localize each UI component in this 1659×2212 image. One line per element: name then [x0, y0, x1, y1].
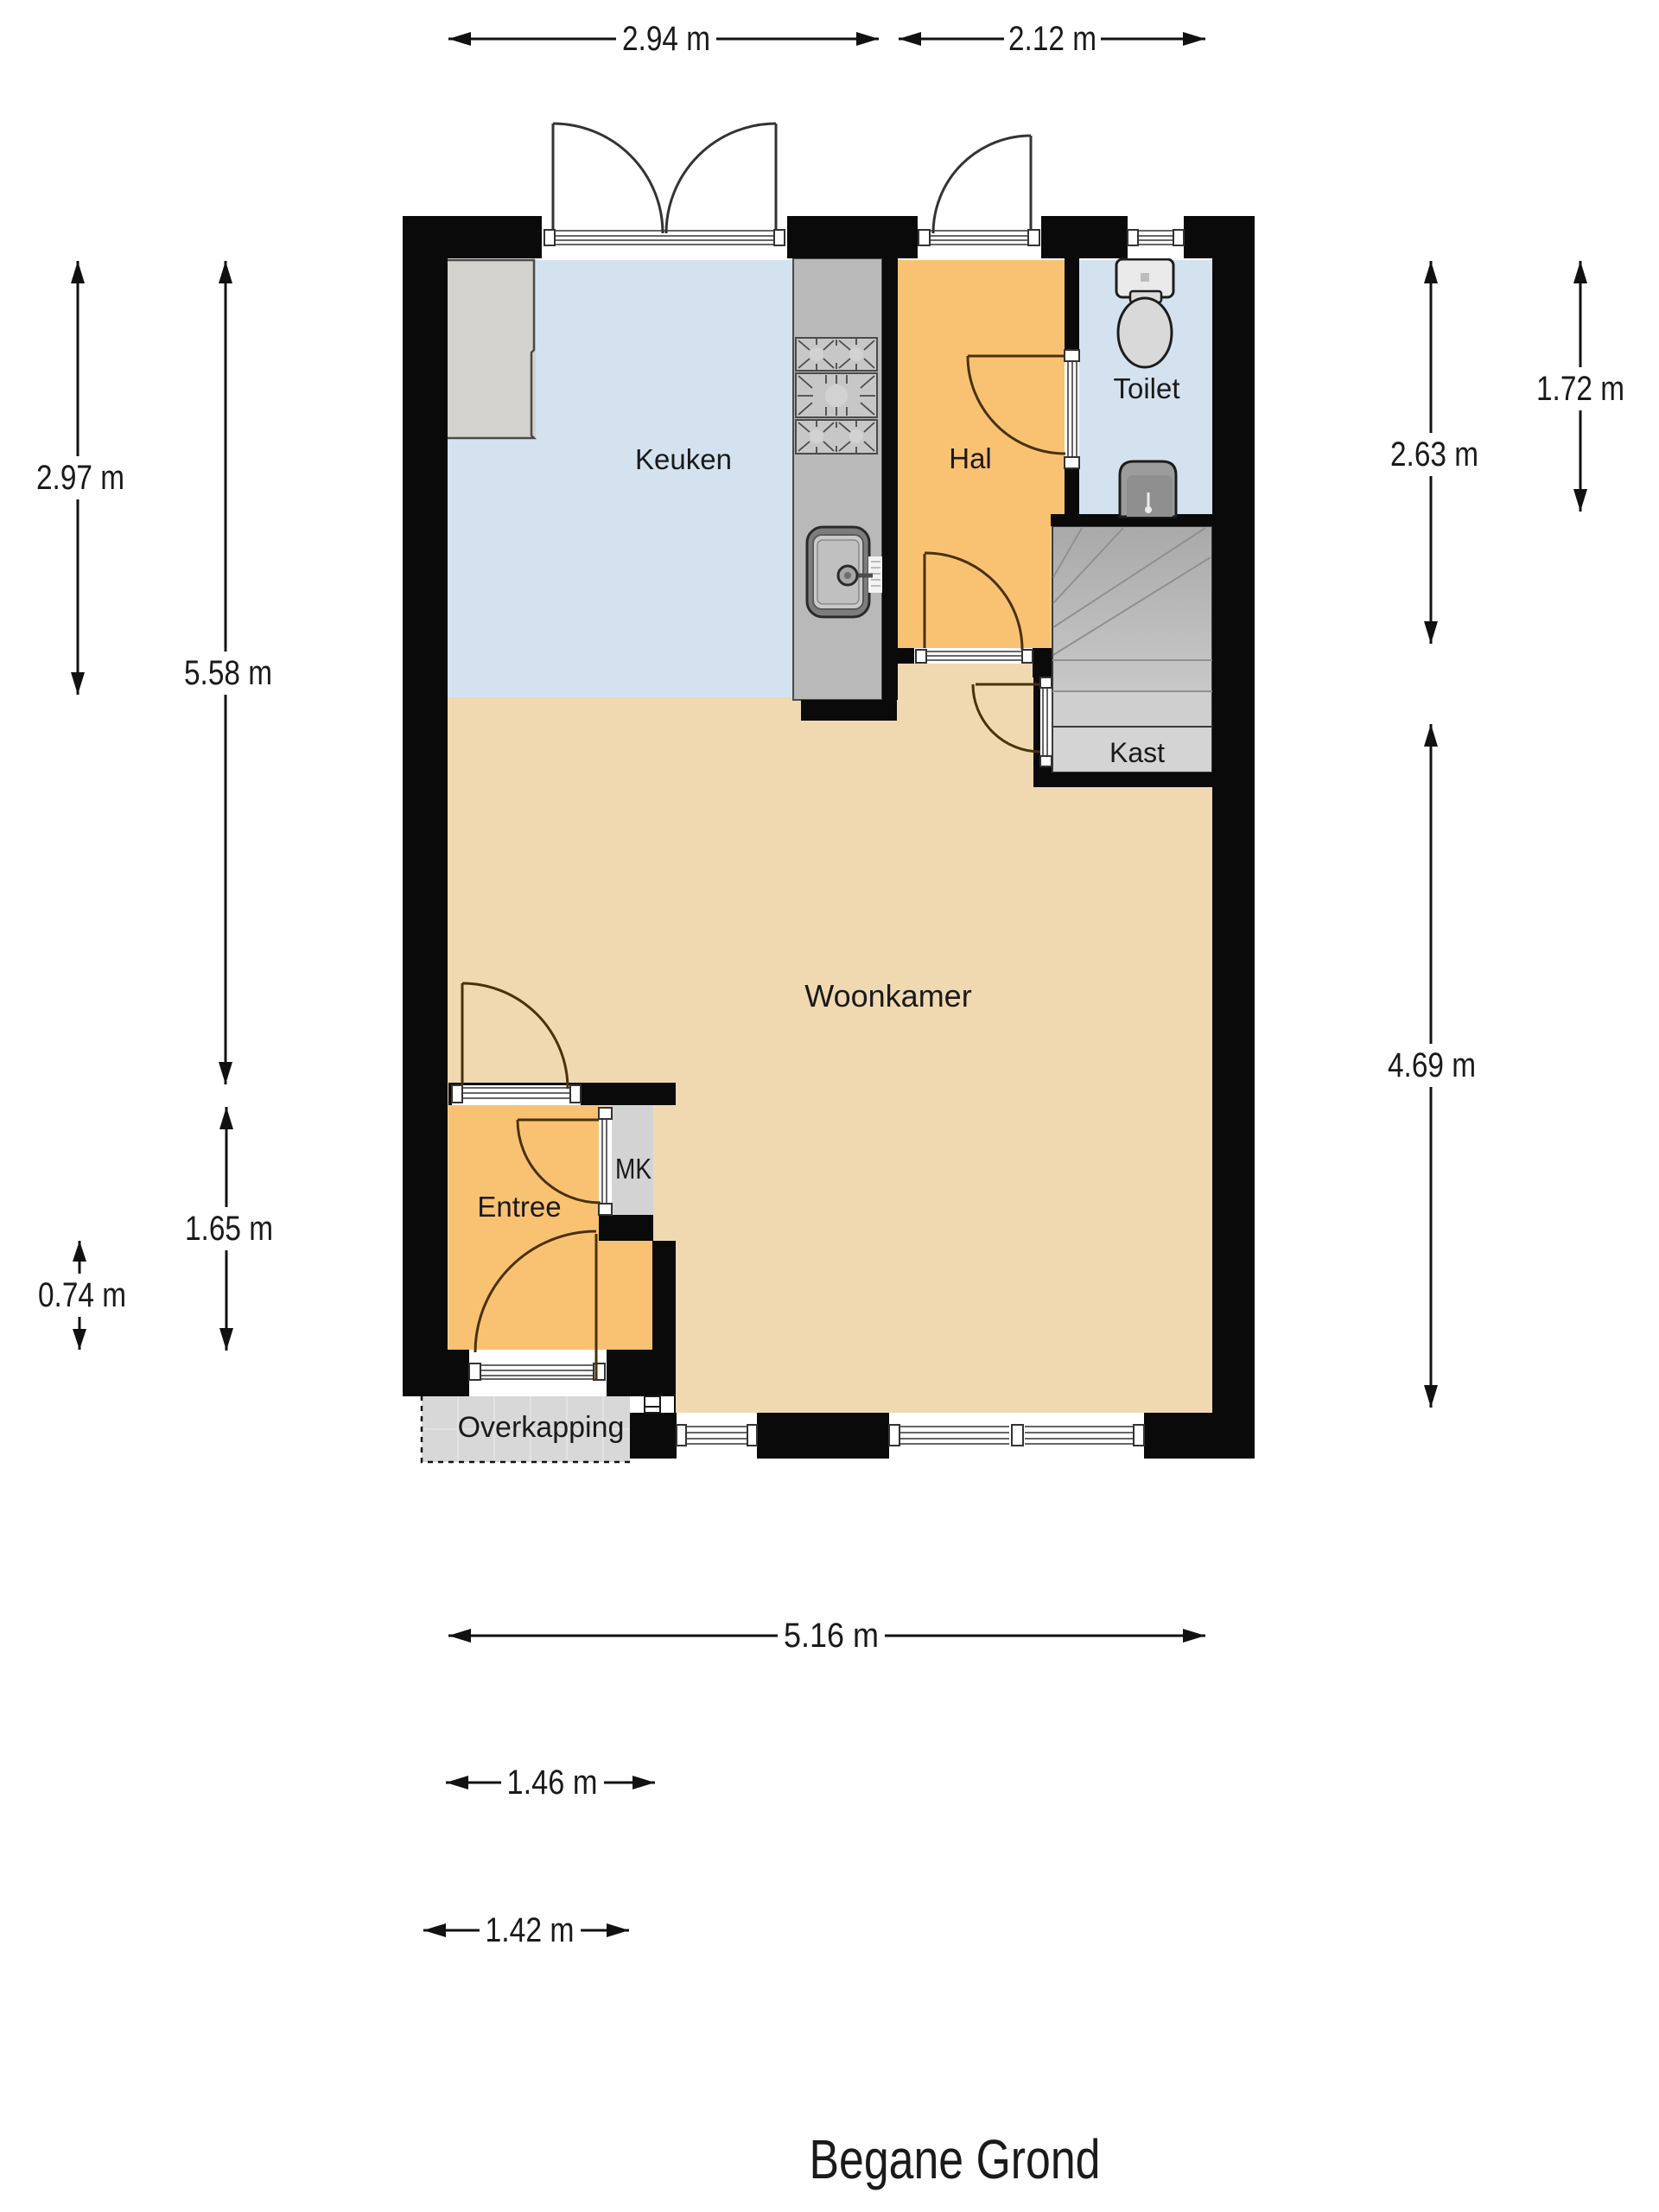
svg-text:2.12 m: 2.12 m	[1008, 20, 1096, 58]
svg-text:5.58 m: 5.58 m	[184, 654, 272, 692]
svg-text:1.42 m: 1.42 m	[486, 1911, 575, 1949]
svg-text:2.97 m: 2.97 m	[36, 459, 124, 497]
svg-text:1.72 m: 1.72 m	[1536, 370, 1624, 408]
svg-text:4.69 m: 4.69 m	[1388, 1046, 1476, 1084]
svg-text:Overkapping: Overkapping	[458, 1411, 625, 1444]
svg-text:0.74 m: 0.74 m	[38, 1276, 126, 1314]
svg-text:Toilet: Toilet	[1113, 372, 1179, 404]
svg-text:Kast: Kast	[1109, 737, 1165, 768]
svg-text:Keuken: Keuken	[635, 443, 732, 475]
svg-text:Entree: Entree	[477, 1191, 561, 1223]
svg-text:2.63 m: 2.63 m	[1390, 435, 1478, 474]
svg-text:MK: MK	[615, 1153, 652, 1185]
svg-text:1.65 m: 1.65 m	[185, 1210, 273, 1248]
svg-text:Hal: Hal	[949, 442, 992, 474]
svg-text:2.94 m: 2.94 m	[622, 20, 710, 58]
svg-text:1.46 m: 1.46 m	[507, 1764, 598, 1802]
svg-text:5.16 m: 5.16 m	[784, 1617, 879, 1655]
svg-text:Begane Grond: Begane Grond	[810, 2128, 1101, 2190]
svg-text:Woonkamer: Woonkamer	[804, 978, 971, 1014]
